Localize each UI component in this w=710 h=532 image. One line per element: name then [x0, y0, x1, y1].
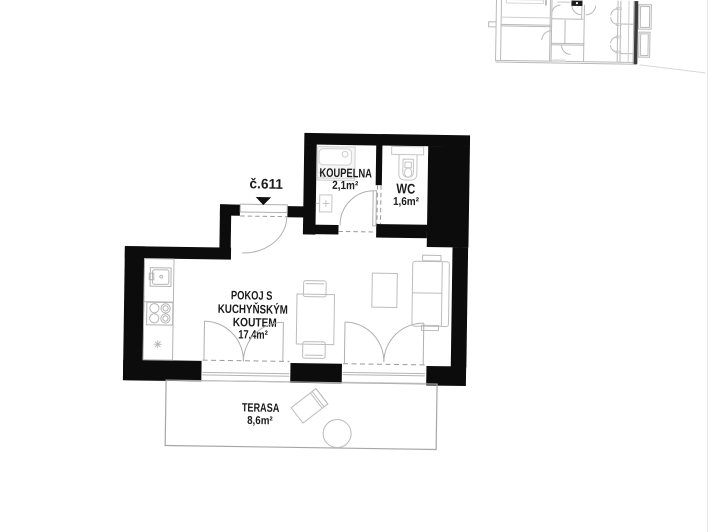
- svg-text:POKOJ S: POKOJ S: [231, 288, 273, 303]
- svg-text:8,6m²: 8,6m²: [247, 415, 273, 427]
- svg-text:KUCHYŇSKÝM: KUCHYŇSKÝM: [218, 301, 288, 317]
- svg-text:WC: WC: [396, 180, 415, 196]
- svg-text:TERASA: TERASA: [242, 400, 280, 415]
- svg-text:17,4m²: 17,4m²: [238, 327, 268, 341]
- svg-text:1,6m²: 1,6m²: [393, 196, 419, 208]
- svg-text:č.611: č.611: [249, 175, 283, 191]
- svg-text:2,1m²: 2,1m²: [332, 179, 358, 192]
